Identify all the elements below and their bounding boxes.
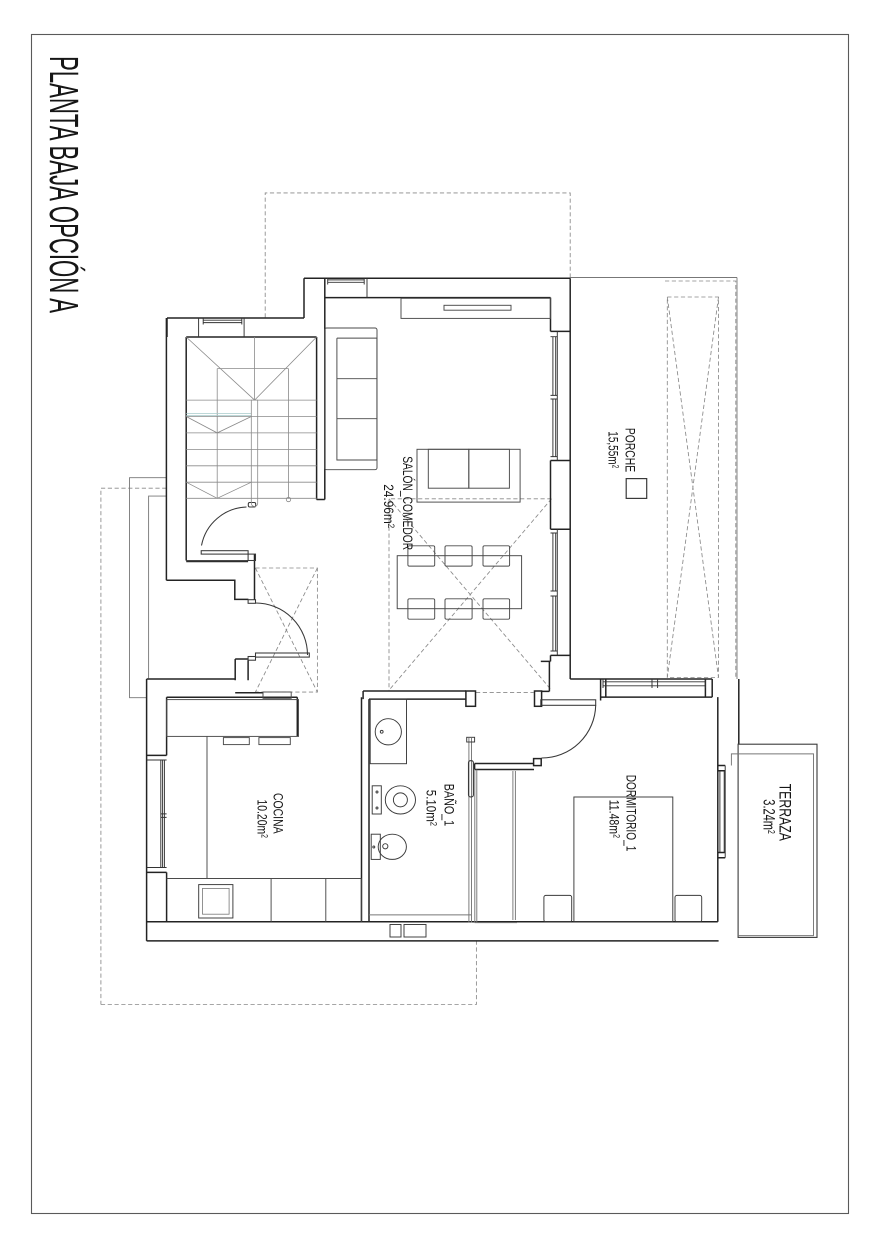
svg-text:24.96m2: 24.96m2 <box>381 484 396 528</box>
svg-text:BAÑO_1: BAÑO_1 <box>442 784 457 826</box>
svg-text:3.24m2: 3.24m2 <box>760 799 779 834</box>
svg-text:PLANTA BAJA OPCIÓN A: PLANTA BAJA OPCIÓN A <box>41 56 87 313</box>
svg-text:COCINA: COCINA <box>271 793 286 834</box>
svg-text:SALÓN_COMEDOR: SALÓN_COMEDOR <box>400 456 415 550</box>
svg-text:11.48m2: 11.48m2 <box>607 800 622 838</box>
svg-text:PORCHE: PORCHE <box>623 428 638 472</box>
svg-text:DORMITORIO_1: DORMITORIO_1 <box>624 775 639 852</box>
svg-text:15,55m2: 15,55m2 <box>605 431 620 468</box>
svg-text:5.10m2: 5.10m2 <box>424 790 439 826</box>
svg-text:10.20m2: 10.20m2 <box>254 800 269 839</box>
